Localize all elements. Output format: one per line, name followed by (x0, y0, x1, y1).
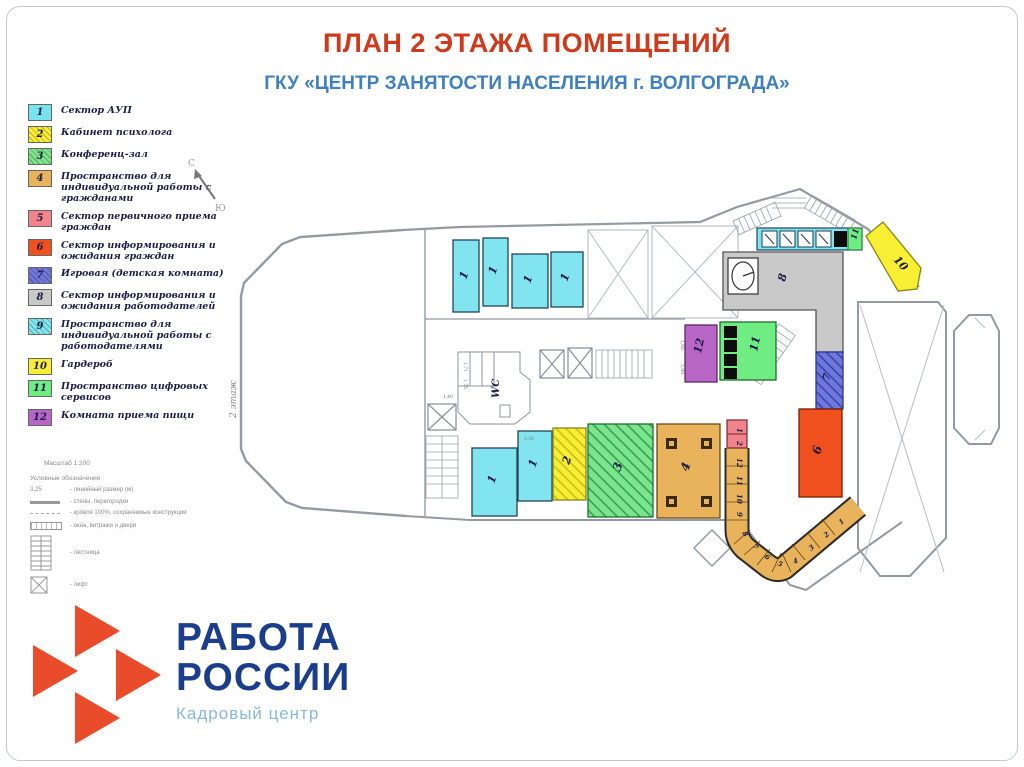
legend-label-10: Гардероб (61, 358, 113, 371)
legend-swatch-6: 6 (28, 239, 52, 256)
svg-text:1: 1 (735, 428, 744, 433)
svg-text:1,71: 1,71 (462, 362, 468, 372)
floor-plan: WC 1 1 1 1 1 1 2 3 4 8 7 6 12 11 (180, 138, 1010, 603)
page-title: ПЛАН 2 ЭТАЖА ПОМЕЩЕНИЙ (40, 28, 1014, 59)
balcony-octagon (954, 315, 999, 444)
north-arrow: С Ю (188, 159, 226, 214)
line-symbol-icon (30, 513, 64, 514)
floor-label: 2 этаж (229, 379, 239, 419)
symbol-label-window: - окна, витражи и двери (70, 523, 136, 530)
wc-label: WC (491, 379, 502, 398)
logo-pinwheel-icon (28, 600, 173, 750)
legend-swatch-5: 5 (28, 210, 52, 227)
stairs-left (426, 436, 458, 498)
svg-text:3,30: 3,30 (524, 436, 534, 442)
legend-swatch-2: 2 (28, 126, 52, 143)
symbol-label-lift: - лифт (70, 582, 88, 589)
logo: РАБОТА РОССИИ Кадровый центр (28, 600, 388, 750)
entrance-vestibule (694, 530, 730, 566)
svg-text:1,75: 1,75 (462, 379, 468, 389)
north-s-label: Ю (215, 204, 226, 214)
logo-line1: РАБОТА (176, 618, 350, 658)
legend-swatch-12: 12 (28, 409, 52, 426)
svg-text:11: 11 (735, 476, 744, 486)
spiral-stair-icon (728, 258, 758, 294)
legend-label-12: Комната приема пищи (61, 409, 194, 422)
elevator-shafts (428, 348, 592, 430)
legend-swatch-7: 7 (28, 267, 52, 284)
symbol-label-line: - кровля 100%, сохраняемые конструкции (70, 510, 187, 517)
page-subtitle: ГКУ «ЦЕНТР ЗАНЯТОСТИ НАСЕЛЕНИЯ г. ВОЛГОГ… (40, 73, 1014, 95)
logo-text: РАБОТА РОССИИ Кадровый центр (176, 618, 350, 724)
logo-subtitle: Кадровый центр (176, 704, 350, 724)
legend-swatch-4: 4 (28, 170, 52, 187)
legend-label-1: Сектор АУП (61, 104, 132, 117)
symbol-label-wall: - стены, перегородки (70, 499, 128, 506)
legend-label-3: Конференц-зал (61, 148, 148, 161)
svg-text:1,40: 1,40 (443, 394, 453, 400)
symbol-label-stairs: - лестница (70, 550, 100, 557)
svg-text:2: 2 (735, 440, 744, 446)
room-wardrobe (866, 222, 921, 291)
symbol-label-dimension: - линейный размер (м) (70, 487, 133, 494)
wall-symbol-icon (30, 501, 64, 504)
stairs-symbol-icon (30, 535, 64, 571)
legend-swatch-11: 11 (28, 380, 52, 397)
svg-text:12: 12 (735, 458, 744, 468)
digital-strip (757, 228, 862, 250)
svg-text:10: 10 (735, 494, 744, 504)
logo-line2: РОССИИ (176, 658, 350, 698)
svg-text:1,60: 1,60 (679, 340, 685, 350)
svg-text:2,80: 2,80 (679, 364, 685, 374)
legend-item-1: 1Сектор АУП (28, 104, 224, 121)
void-cross-left (588, 230, 648, 318)
hall-outline (241, 230, 406, 516)
stairs-center (596, 350, 652, 378)
legend-swatch-3: 3 (28, 148, 52, 165)
north-n-label: С (188, 159, 195, 169)
legend-swatch-1: 1 (28, 104, 52, 121)
window-symbol-icon (30, 522, 64, 530)
header: ПЛАН 2 ЭТАЖА ПОМЕЩЕНИЙ ГКУ «ЦЕНТР ЗАНЯТО… (40, 28, 1014, 95)
svg-text:9: 9 (735, 512, 744, 517)
legend-swatch-9: 9 (28, 318, 52, 335)
legend-swatch-8: 8 (28, 289, 52, 306)
legend-swatch-10: 10 (28, 358, 52, 375)
legend-label-2: Кабинет психолога (61, 126, 172, 139)
lift-symbol-icon (30, 576, 64, 594)
dimension-symbol-icon: 3,25 (30, 487, 64, 494)
